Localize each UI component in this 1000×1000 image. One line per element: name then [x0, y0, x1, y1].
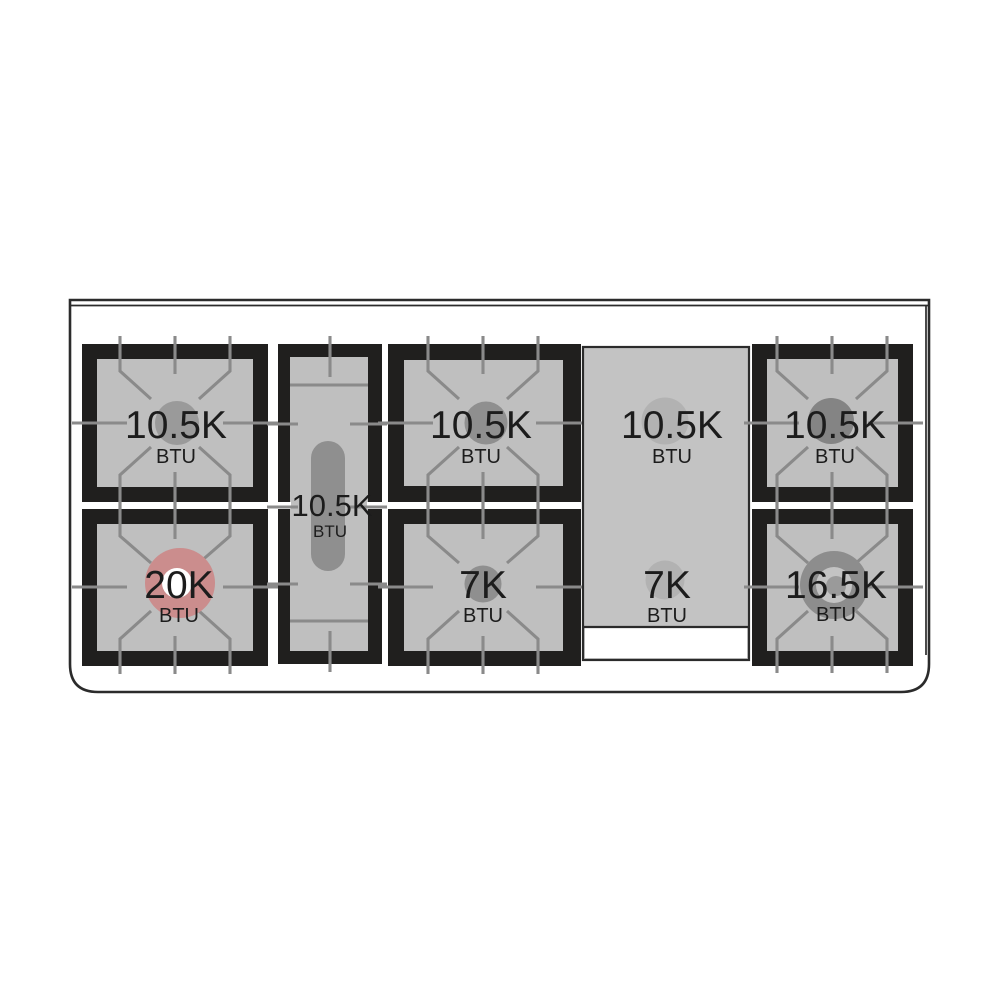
btu-value: 10.5K — [125, 404, 227, 447]
btu-unit: BTU — [652, 446, 692, 468]
btu-value: 10.5K — [430, 404, 532, 447]
burner-center-oval[interactable]: 10.5K BTU — [267, 336, 387, 672]
btu-value: 7K — [459, 564, 507, 607]
burner-left-rear[interactable]: 10.5K BTU — [72, 336, 278, 510]
burner-middle-front[interactable]: 7K BTU — [378, 501, 586, 674]
btu-value: 16.5K — [785, 564, 887, 607]
btu-unit: BTU — [463, 605, 503, 627]
btu-value: 10.5K — [291, 488, 372, 523]
btu-unit: BTU — [815, 446, 855, 468]
btu-unit: BTU — [156, 446, 196, 468]
btu-value: 20K — [144, 564, 213, 607]
btu-unit: BTU — [159, 605, 199, 627]
btu-unit: BTU — [313, 522, 347, 541]
btu-unit: BTU — [461, 446, 501, 468]
cooktop-diagram: 10.5K BTU 20K BTU 10.5K BTU 10.5K BTU — [0, 0, 1000, 1000]
burner-right-rear[interactable]: 10.5K BTU — [744, 336, 923, 510]
btu-value: 7K — [643, 564, 691, 607]
btu-value: 10.5K — [784, 404, 886, 447]
burner-middle-rear[interactable]: 10.5K BTU — [378, 336, 586, 510]
burner-right-front[interactable]: 16.5K BTU — [744, 501, 923, 673]
griddle-handle-strip — [585, 628, 747, 658]
btu-unit: BTU — [816, 604, 856, 626]
burner-left-front[interactable]: 20K BTU — [72, 501, 278, 674]
btu-value: 10.5K — [621, 404, 723, 447]
griddle-zone[interactable]: 10.5K BTU 7K BTU — [583, 347, 749, 660]
btu-unit: BTU — [647, 605, 687, 627]
